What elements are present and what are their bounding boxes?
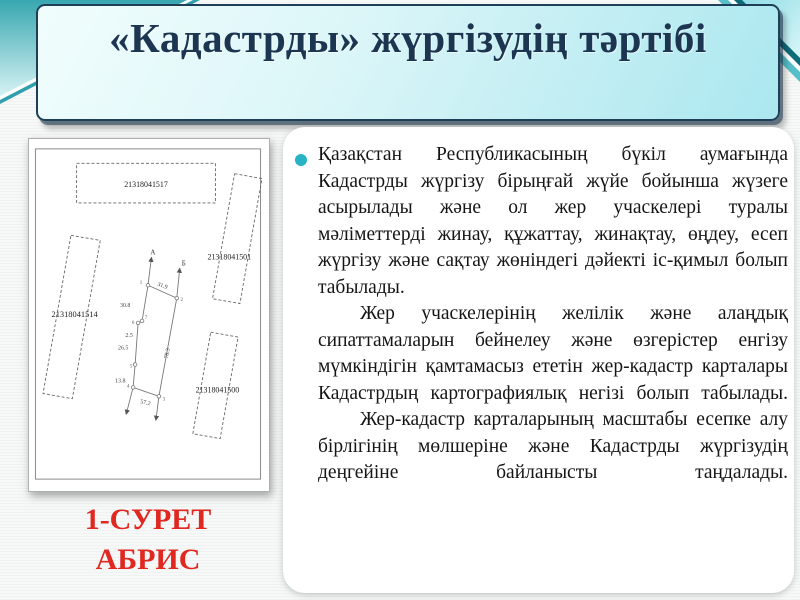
boundary-extension-left (126, 387, 133, 414)
parcel-number-top: 21318041517 (124, 180, 168, 189)
measurement-seg-6-5: 26.5 (118, 346, 128, 352)
vertex-point (136, 321, 140, 325)
axis-label-a: А (150, 249, 155, 257)
point-number-1: 1 (140, 281, 143, 286)
surveyed-parcel-boundary (133, 285, 177, 396)
parcel-number-right: 21318041501 (208, 252, 252, 261)
slide-title-box: «Кадастрды» жүргізудің тәртібі (36, 4, 780, 121)
cadastral-sketch-drawing: 21318041517 21318041501 21318041514 2131… (29, 139, 267, 489)
axis-arrow-b (177, 268, 180, 298)
point-number-6: 6 (132, 321, 135, 326)
vertex-point (140, 319, 144, 323)
vertex-point (146, 283, 150, 287)
axis-arrow-a (148, 257, 151, 285)
body-text: Қазақстан Республикасының бүкіл аумағынд… (318, 142, 788, 487)
abris-figure: 21318041517 21318041501 21318041514 2131… (28, 138, 270, 492)
point-number-5: 5 (130, 365, 133, 370)
vertex-point (131, 386, 135, 390)
parcel-number-left: 21318041514 (51, 309, 98, 319)
axis-label-b: Б (182, 259, 186, 267)
measurement-right-edge: 78.3 (164, 348, 172, 359)
paragraph-2: Жер учаскелерінің желілік және алаңдық с… (318, 301, 788, 407)
body-text-panel: Қазақстан Республикасының бүкіл аумағынд… (283, 127, 794, 593)
measurement-bottom-edge: 57.2 (140, 399, 151, 407)
measurement-seg-5-4: 13.8 (115, 378, 125, 384)
paragraph-3: Жер-кадастр карталарының масштабы есепке… (318, 407, 788, 487)
bullet-icon (295, 154, 307, 166)
parcel-number-bottom-right: 21318041500 (196, 385, 240, 394)
vertex-point (157, 395, 161, 399)
measurement-seg-1-7: 30.8 (120, 303, 130, 309)
point-number-4: 4 (127, 384, 130, 389)
presentation-slide: «Кадастрды» жүргізудің тәртібі 213180415… (0, 0, 800, 600)
point-number-3: 3 (163, 397, 166, 402)
vertex-point (175, 296, 179, 300)
figure-caption-line2: АБРИС (28, 540, 268, 580)
figure-caption-line1: 1-СУРЕТ (28, 500, 268, 540)
figure-caption: 1-СУРЕТ АБРИС (28, 500, 268, 579)
paragraph-1: Қазақстан Республикасының бүкіл аумағынд… (318, 142, 788, 301)
vertex-point (133, 363, 137, 367)
parcel-outline-right (213, 174, 262, 304)
point-number-2: 2 (180, 298, 183, 303)
measurement-seg-7-6: 2.5 (125, 333, 132, 339)
boundary-extension-right (156, 396, 159, 420)
page-title: «Кадастрды» жүргізудің тәртібі (38, 14, 778, 62)
point-number-7: 7 (145, 316, 148, 321)
